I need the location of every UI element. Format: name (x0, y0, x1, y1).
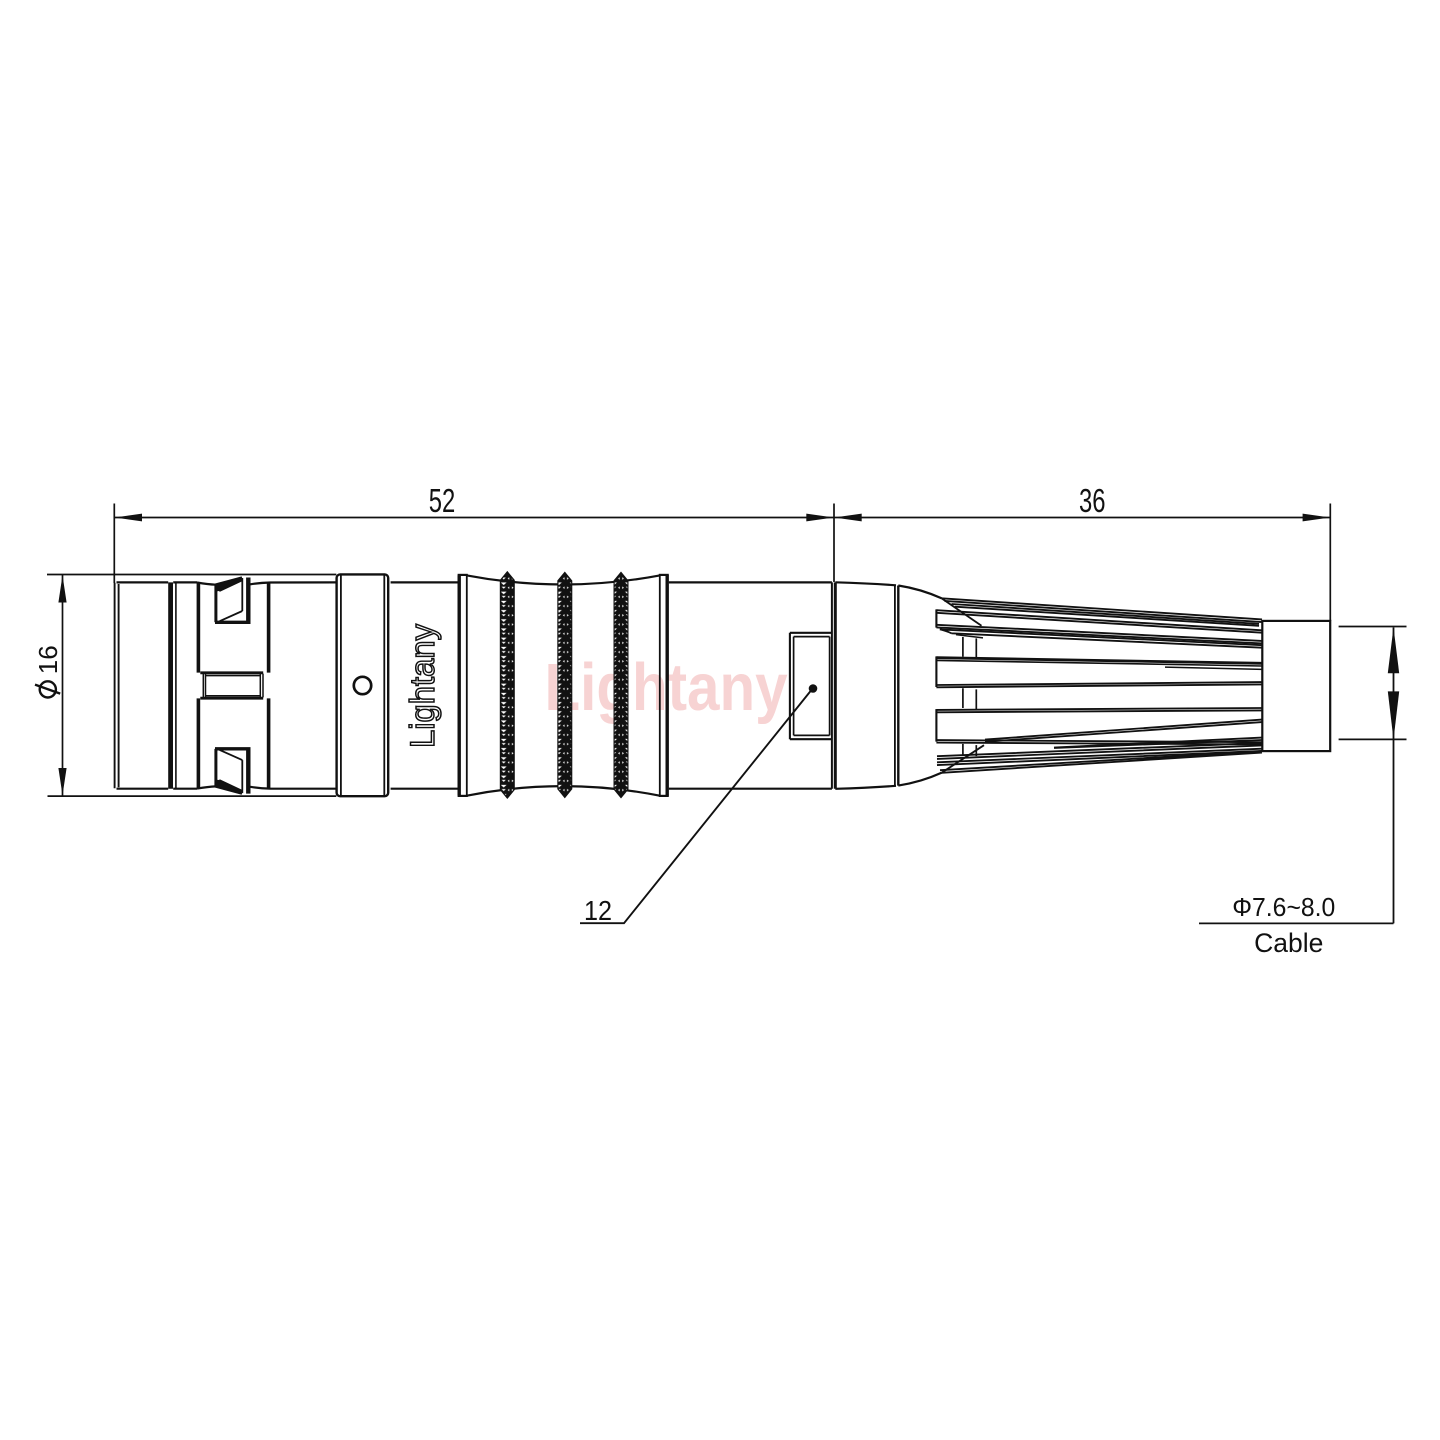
svg-text:16: 16 (33, 645, 63, 674)
svg-text:52: 52 (429, 482, 456, 519)
svg-text:Φ7.6~8.0: Φ7.6~8.0 (1232, 892, 1335, 922)
svg-text:Lightany: Lightany (404, 624, 442, 748)
svg-text:Cable: Cable (1254, 928, 1323, 958)
svg-text:12: 12 (584, 895, 612, 926)
svg-text:36: 36 (1079, 482, 1106, 519)
